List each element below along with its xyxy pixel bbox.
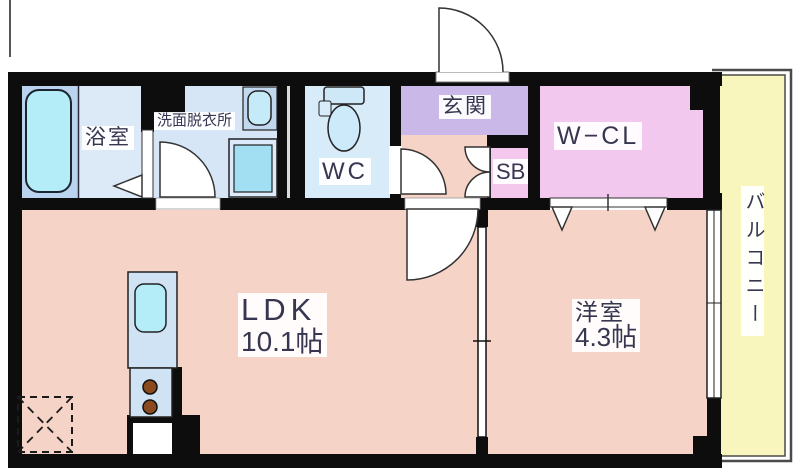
wall-seam-line <box>287 86 290 198</box>
toilet-flush-handle <box>319 101 331 116</box>
washing-machine-pan-inner <box>234 145 272 192</box>
bathroom-label: 浴室 <box>82 126 134 150</box>
wall-closet-notch <box>690 72 720 110</box>
stove-burner <box>143 400 157 414</box>
balcony-label: バルコニー <box>741 186 764 336</box>
wall-sanitary-bottom-mid <box>220 198 407 210</box>
wall-above-window <box>707 193 722 210</box>
kitchen-sink <box>135 284 166 332</box>
wall-washroom-notch <box>154 86 185 113</box>
entrance-label: 玄関 <box>439 95 491 119</box>
bedroom-size: 4.3帖 <box>575 324 637 351</box>
wall-bath-washroom <box>141 86 154 132</box>
wc-label: WC <box>319 158 371 185</box>
wall-top <box>8 72 722 86</box>
stove-burner <box>143 380 157 394</box>
toilet-bowl <box>328 105 360 151</box>
wall-left <box>8 72 22 468</box>
bedroom-label: 洋室 4.3帖 <box>572 299 640 352</box>
ldk-label: LDK 10.1帖 <box>238 293 327 357</box>
wall-wc-hall-upper <box>390 86 401 146</box>
entrance-door <box>436 8 509 82</box>
walkin-closet-label: W−CL <box>554 122 642 150</box>
wall-washroom-wc <box>277 86 305 198</box>
shoebox-label: SB <box>493 159 528 184</box>
wall-above-shoebox <box>487 135 540 148</box>
kitchen-base-opening <box>133 423 172 454</box>
wall-bedroom-top-left <box>488 198 550 210</box>
balcony-window <box>707 210 721 398</box>
ldk-name: LDK <box>241 294 324 327</box>
washroom-label: 洗面脱衣所 <box>154 112 235 130</box>
vanity-sink <box>248 91 271 125</box>
wall-bottom <box>8 454 722 468</box>
floorplan-canvas <box>0 0 800 470</box>
bathtub <box>26 90 71 192</box>
partition-stub-bottom <box>476 437 488 454</box>
bedroom-name: 洋室 <box>575 300 637 324</box>
wall-sanitary-bottom-left <box>22 198 156 210</box>
floorplan: 浴室 洗面脱衣所 WC 玄関 SB W−CL LDK 10.1帖 洋室 4.3帖… <box>0 0 800 470</box>
ldk-size: 10.1帖 <box>241 327 324 356</box>
